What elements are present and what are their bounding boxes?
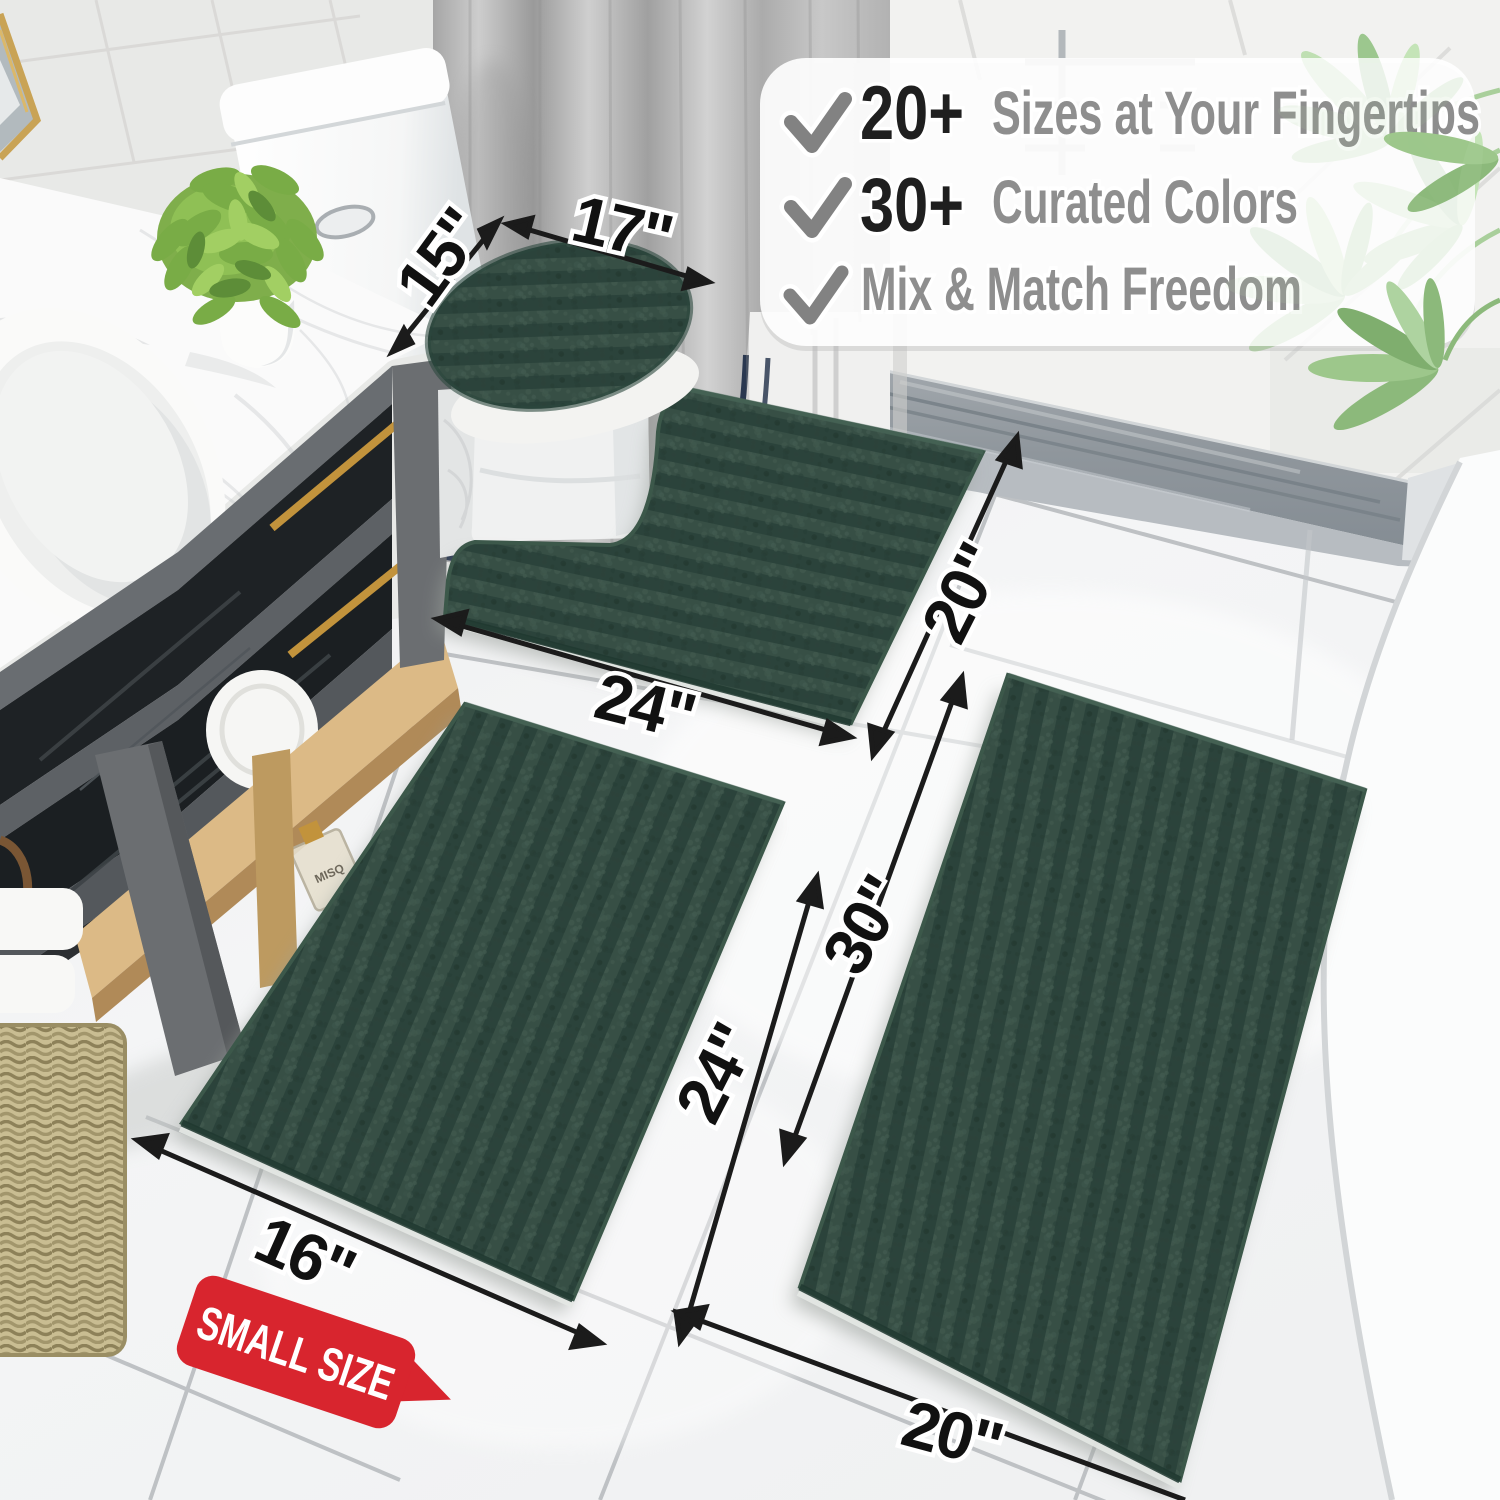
svg-text:Curated Colors: Curated Colors (992, 168, 1298, 236)
svg-text:30+: 30+ (860, 163, 964, 248)
svg-text:20+: 20+ (860, 71, 964, 156)
